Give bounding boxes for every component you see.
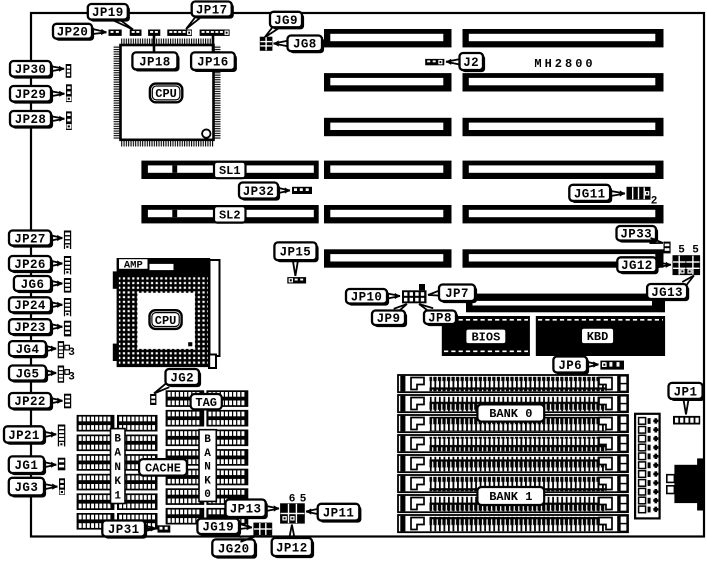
svg-text:TAG: TAG bbox=[195, 396, 217, 410]
svg-text:SL1: SL1 bbox=[219, 164, 241, 178]
svg-text:JP9: JP9 bbox=[377, 312, 401, 326]
svg-text:JP33: JP33 bbox=[620, 228, 652, 242]
svg-text:B: B bbox=[114, 434, 121, 446]
svg-text:N: N bbox=[114, 462, 121, 474]
svg-text:B: B bbox=[204, 434, 211, 446]
svg-text:JP20: JP20 bbox=[57, 26, 89, 40]
svg-text:BANK 1: BANK 1 bbox=[489, 490, 532, 504]
svg-text:JP17: JP17 bbox=[196, 3, 228, 17]
svg-text:JP31: JP31 bbox=[108, 523, 140, 537]
svg-text:5: 5 bbox=[678, 245, 685, 257]
svg-text:JG19: JG19 bbox=[202, 521, 234, 535]
svg-text:JP10: JP10 bbox=[351, 291, 383, 305]
svg-text:1: 1 bbox=[114, 490, 121, 502]
svg-text:JP26: JP26 bbox=[14, 258, 46, 272]
svg-text:JP11: JP11 bbox=[323, 507, 355, 521]
svg-text:JP12: JP12 bbox=[276, 541, 308, 555]
svg-text:JP21: JP21 bbox=[8, 429, 40, 443]
svg-text:JP22: JP22 bbox=[14, 395, 46, 409]
svg-text:3: 3 bbox=[68, 347, 75, 359]
svg-text:5: 5 bbox=[692, 245, 699, 257]
svg-text:JP24: JP24 bbox=[14, 299, 46, 313]
svg-text:JG11: JG11 bbox=[574, 187, 606, 201]
svg-text:J2: J2 bbox=[463, 56, 479, 70]
svg-text:JG12: JG12 bbox=[621, 259, 653, 273]
svg-text:A: A bbox=[114, 448, 121, 460]
svg-text:JP15: JP15 bbox=[280, 246, 312, 260]
svg-text:AMP: AMP bbox=[124, 260, 143, 272]
svg-text:JP28: JP28 bbox=[15, 113, 47, 127]
svg-text:JP7: JP7 bbox=[445, 287, 469, 301]
svg-text:JG6: JG6 bbox=[21, 278, 45, 292]
svg-text:JG3: JG3 bbox=[15, 481, 39, 495]
svg-text:K: K bbox=[204, 475, 211, 487]
svg-text:JG4: JG4 bbox=[16, 343, 40, 357]
svg-text:0: 0 bbox=[204, 489, 211, 501]
svg-text:BIOS: BIOS bbox=[471, 331, 500, 345]
svg-text:JP29: JP29 bbox=[15, 88, 47, 102]
svg-text:K: K bbox=[114, 476, 121, 488]
svg-text:JG2: JG2 bbox=[170, 371, 194, 385]
svg-text:N: N bbox=[204, 462, 211, 474]
svg-text:JP1: JP1 bbox=[674, 385, 698, 399]
svg-text:JP16: JP16 bbox=[197, 56, 229, 70]
svg-text:JP30: JP30 bbox=[15, 63, 47, 77]
svg-text:JG9: JG9 bbox=[274, 14, 298, 28]
svg-text:JP32: JP32 bbox=[243, 185, 275, 199]
svg-text:MH2800: MH2800 bbox=[534, 57, 595, 71]
svg-text:JG5: JG5 bbox=[16, 367, 40, 381]
svg-text:CPU: CPU bbox=[155, 314, 177, 328]
svg-text:JG13: JG13 bbox=[651, 286, 683, 300]
svg-text:JP27: JP27 bbox=[14, 232, 46, 246]
svg-text:JP23: JP23 bbox=[14, 321, 46, 335]
svg-text:JG8: JG8 bbox=[293, 38, 317, 52]
svg-text:2: 2 bbox=[651, 196, 658, 208]
svg-text:JP13: JP13 bbox=[230, 503, 262, 517]
svg-text:JP19: JP19 bbox=[92, 6, 124, 20]
svg-text:JP6: JP6 bbox=[558, 359, 582, 373]
svg-text:3: 3 bbox=[68, 372, 75, 384]
svg-text:JP8: JP8 bbox=[428, 312, 452, 326]
svg-text:BANK 0: BANK 0 bbox=[489, 407, 532, 421]
svg-text:SL2: SL2 bbox=[219, 209, 241, 223]
svg-text:JG20: JG20 bbox=[218, 542, 250, 556]
svg-text:KBD: KBD bbox=[587, 330, 609, 344]
svg-text:JG1: JG1 bbox=[15, 459, 39, 473]
svg-text:A: A bbox=[204, 448, 211, 460]
svg-text:CPU: CPU bbox=[155, 87, 177, 101]
svg-text:JP18: JP18 bbox=[139, 55, 171, 69]
svg-text:CACHE: CACHE bbox=[145, 462, 181, 476]
